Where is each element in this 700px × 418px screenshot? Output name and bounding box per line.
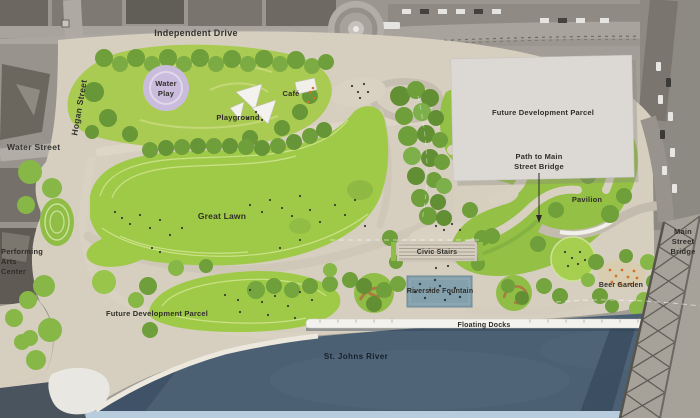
label-riverside-fountain: Riverside Fountain <box>407 288 474 295</box>
label-beer-garden: Beer Garden <box>599 282 643 289</box>
label-performing-arts-3: Center <box>1 267 26 276</box>
label-future-parcel-south: Future Development Parcel <box>106 309 208 318</box>
site-plan-map: Independent Drive Hogan Street Water Str… <box>0 0 700 418</box>
label-main-street-bridge-1: Main <box>674 227 692 236</box>
site-plan-screenshot: Independent Drive Hogan Street Water Str… <box>0 0 700 418</box>
label-playground: Playground <box>216 113 259 122</box>
label-civic-stairs: Civic Stairs <box>417 249 458 256</box>
label-st-johns-river: St. Johns River <box>324 352 388 361</box>
label-water-play-1: Water <box>155 79 177 88</box>
label-cafe: Café <box>282 89 299 98</box>
shore-strip <box>86 411 700 418</box>
label-future-parcel-north: Future Development Parcel <box>492 108 594 117</box>
label-great-lawn: Great Lawn <box>198 211 246 221</box>
label-pavilion: Pavilion <box>572 195 603 204</box>
label-performing-arts-2: Arts <box>1 257 17 266</box>
label-main-street-bridge-3: Bridge <box>671 247 696 256</box>
label-path-to-bridge-1: Path to Main <box>516 152 563 161</box>
label-main-street-bridge-2: Street <box>672 237 695 246</box>
label-independent-drive: Independent Drive <box>154 28 238 38</box>
label-performing-arts-1: Performing <box>1 247 43 256</box>
label-water-street: Water Street <box>7 142 60 152</box>
label-floating-docks: Floating Docks <box>458 322 511 329</box>
label-path-to-bridge-2: Street Bridge <box>514 162 564 171</box>
label-water-play-2: Play <box>158 89 175 98</box>
